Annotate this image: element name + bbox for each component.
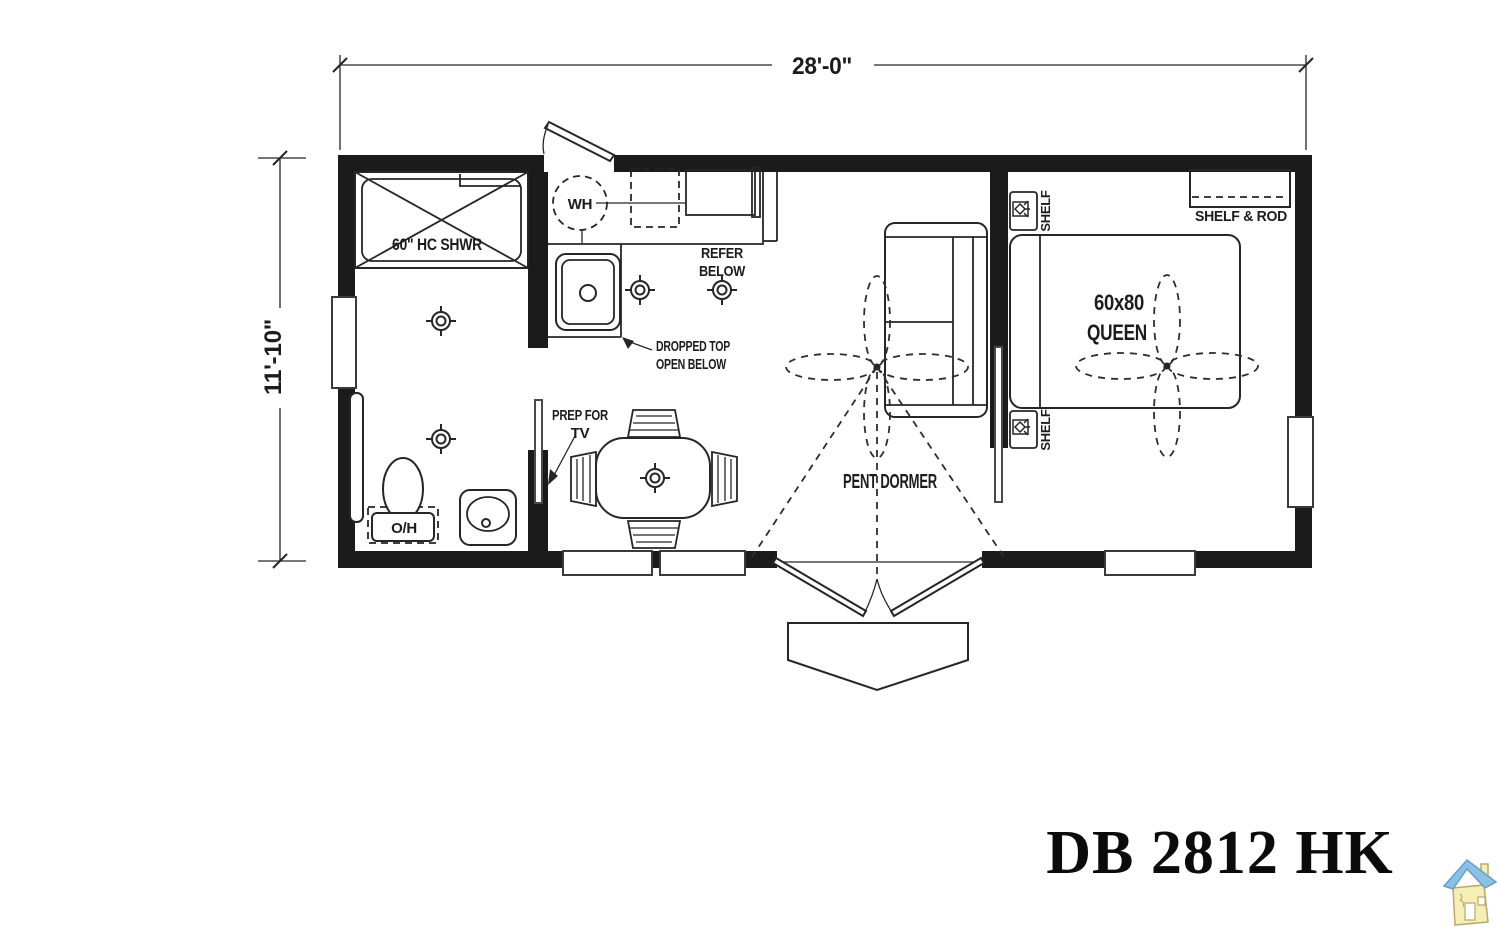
builder-logo <box>1440 856 1498 928</box>
shelf-lower-label: SHELF <box>1038 409 1053 450</box>
dining-area <box>571 410 737 548</box>
queen-bed: 60x80 QUEEN <box>1010 235 1240 408</box>
sofa <box>885 223 987 417</box>
chair-bottom <box>628 521 680 548</box>
shelf-lower: SHELF <box>1010 409 1053 450</box>
window-dining-2 <box>660 551 745 575</box>
grab-bar <box>350 393 363 522</box>
bed-label-1: 60x80 <box>1094 290 1144 315</box>
water-heater-label: WH <box>568 196 592 213</box>
dropped-top-label-1: DROPPED TOP <box>656 338 730 355</box>
tv-label-1: PREP FOR <box>552 407 608 424</box>
entry-door <box>543 122 614 161</box>
bed-label-2: QUEEN <box>1087 320 1147 345</box>
refer-label-1: REFER <box>701 245 743 262</box>
chair-top <box>628 410 680 437</box>
living-room: PENT DORMER <box>752 223 1004 579</box>
sconce-light-upper <box>1013 201 1030 217</box>
house-icon <box>1444 860 1496 925</box>
dimension-height: 11'-10" <box>258 151 306 568</box>
kitchen: WH REFER BELOW DROPPED TOP OPEN BELOW <box>548 167 777 373</box>
pocket-door-bedroom <box>995 347 1002 502</box>
dim-height-label: 11'-10" <box>260 319 287 395</box>
overhead-label: O/H <box>391 520 417 537</box>
dim-width-label: 28'-0" <box>792 53 852 80</box>
pocket-door-bathroom <box>535 400 542 503</box>
refer-space <box>631 169 679 227</box>
bath-light-1 <box>426 306 456 336</box>
kitchen-light-1 <box>625 275 655 305</box>
model-title: DB 2812 HK <box>1016 818 1424 894</box>
toilet-bowl <box>383 458 423 520</box>
porch-step <box>788 623 968 690</box>
floorplan-page: 28'-0" 11'-10" <box>0 0 1500 934</box>
floor-plan-drawing: 28'-0" 11'-10" <box>0 0 1500 934</box>
refer-label-2: BELOW <box>699 263 746 280</box>
bath-sink <box>460 490 516 545</box>
window-dining-1 <box>563 551 652 575</box>
dining-table <box>596 438 710 518</box>
shower: 60" HC SHWR <box>355 172 528 268</box>
pent-dormer-label: PENT DORMER <box>843 471 938 493</box>
patio-doors <box>773 558 984 616</box>
dimension-width: 28'-0" <box>333 53 1313 150</box>
shelf-upper: SHELF <box>1010 190 1053 231</box>
window-left-wall <box>332 297 356 388</box>
shelf-upper-label: SHELF <box>1038 190 1053 231</box>
sconce-light-lower <box>1013 419 1030 435</box>
chair-left <box>571 452 596 506</box>
chair-right <box>712 452 737 506</box>
dining-light <box>640 463 670 493</box>
window-bedroom <box>1105 551 1195 575</box>
bedroom: 60x80 QUEEN SHELF & ROD SHELF SHELF <box>1010 170 1290 457</box>
closet-shelf-rod: SHELF & ROD <box>1190 170 1290 225</box>
dropped-top-label-2: OPEN BELOW <box>656 356 727 373</box>
interior-walls <box>528 172 1008 551</box>
shower-label: 60" HC SHWR <box>392 235 482 254</box>
bathroom: O/H <box>350 306 516 545</box>
refrigerator <box>686 170 755 215</box>
shelf-rod-label: SHELF & ROD <box>1195 208 1287 225</box>
tv-prep: PREP FOR TV <box>548 407 608 485</box>
kitchen-sink <box>556 254 620 330</box>
bath-light-2 <box>426 424 456 454</box>
window-right-wall <box>1288 417 1313 507</box>
